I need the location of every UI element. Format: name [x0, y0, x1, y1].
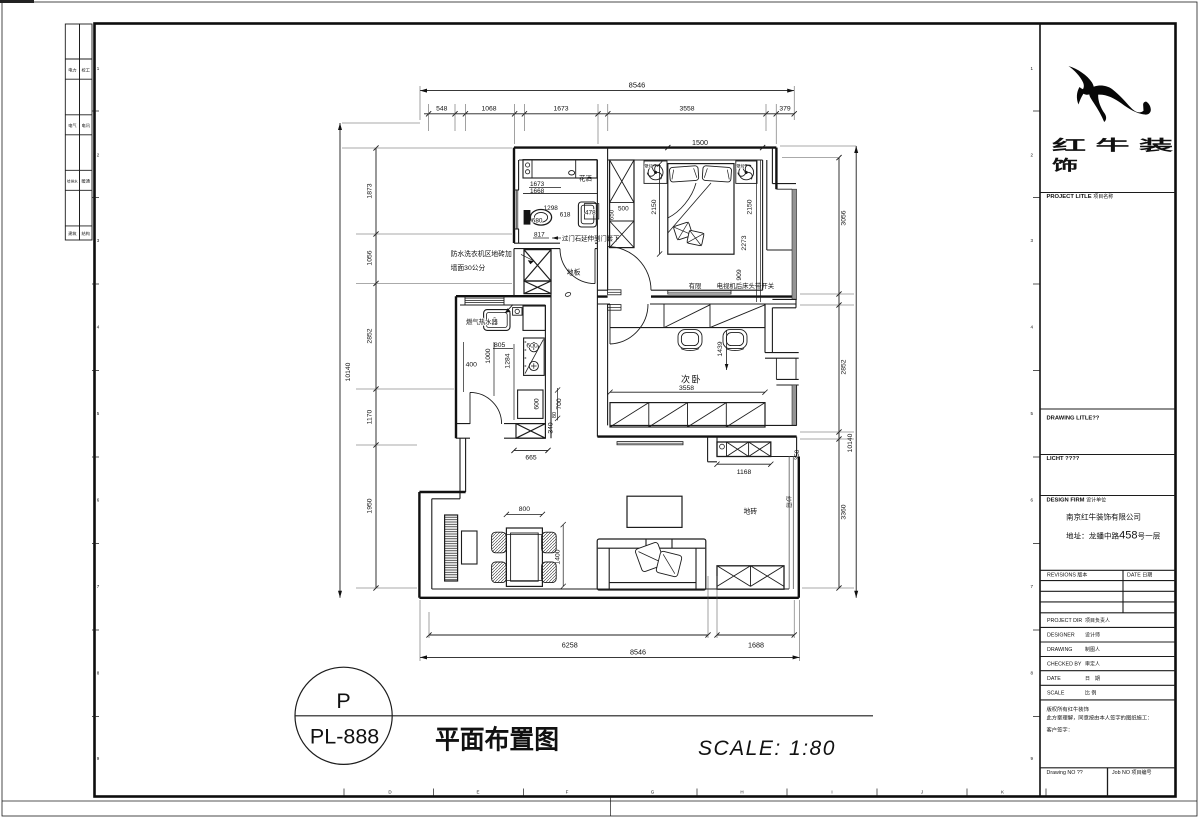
- svg-text:纱帘: 纱帘: [784, 496, 792, 508]
- svg-text:平面布置图: 平面布置图: [435, 724, 559, 754]
- svg-text:2852: 2852: [367, 328, 374, 343]
- svg-text:校工: 校工: [82, 67, 90, 74]
- svg-text:DATE 日期: DATE 日期: [1127, 573, 1152, 579]
- svg-text:3558: 3558: [679, 385, 694, 392]
- svg-text:DESIGN FIRM 设计单位: DESIGN FIRM 设计单位: [1047, 497, 1107, 504]
- svg-text:SCALE: SCALE: [1047, 691, 1065, 697]
- svg-text:电讯: 电讯: [82, 122, 91, 129]
- svg-text:G: G: [651, 790, 655, 795]
- svg-text:CHECKED BY: CHECKED BY: [1047, 662, 1082, 668]
- svg-text:给排水: 给排水: [67, 179, 78, 184]
- svg-text:1500: 1500: [692, 138, 708, 147]
- svg-text:日 期: 日 期: [1085, 676, 1100, 682]
- svg-text:1673: 1673: [553, 105, 568, 112]
- svg-text:红 牛 装: 红 牛 装: [1052, 137, 1174, 155]
- svg-text:SCALE: 1:80: SCALE: 1:80: [698, 737, 836, 760]
- svg-text:5: 5: [97, 411, 100, 416]
- svg-text:过门石延伸到门套下: 过门石延伸到门套下: [562, 233, 620, 242]
- svg-text:3056: 3056: [840, 210, 847, 225]
- svg-text:3: 3: [97, 238, 100, 243]
- svg-text:350: 350: [794, 449, 801, 460]
- svg-text:478: 478: [585, 210, 596, 217]
- svg-text:此方案理解，同意按由本人签字的图纸施工：: 此方案理解，同意按由本人签字的图纸施工：: [1047, 714, 1153, 722]
- svg-text:比 例: 比 例: [1085, 690, 1096, 697]
- svg-text:1668: 1668: [530, 188, 545, 195]
- svg-text:1056: 1056: [367, 250, 374, 265]
- svg-text:制图人: 制图人: [1085, 646, 1100, 653]
- svg-text:6: 6: [1031, 498, 1034, 503]
- svg-text:1: 1: [97, 66, 100, 71]
- svg-text:379: 379: [779, 105, 791, 112]
- svg-text:1170: 1170: [367, 409, 374, 424]
- svg-text:7: 7: [1031, 584, 1034, 589]
- svg-text:3: 3: [1031, 238, 1034, 243]
- svg-text:6258: 6258: [562, 640, 578, 649]
- svg-text:2: 2: [97, 153, 100, 158]
- svg-text:8: 8: [1031, 671, 1034, 676]
- svg-text:9: 9: [1031, 756, 1034, 761]
- svg-text:DATE: DATE: [1047, 676, 1061, 682]
- svg-text:建筑: 建筑: [68, 230, 77, 237]
- svg-text:10140: 10140: [345, 362, 352, 381]
- svg-text:817: 817: [534, 232, 545, 239]
- svg-text:饰: 饰: [1052, 157, 1078, 175]
- svg-text:618: 618: [560, 211, 571, 218]
- svg-text:1298: 1298: [544, 205, 559, 212]
- svg-text:600: 600: [526, 343, 538, 350]
- svg-text:4: 4: [97, 325, 100, 330]
- svg-text:2273: 2273: [741, 235, 748, 250]
- svg-text:D: D: [388, 790, 392, 795]
- svg-text:8546: 8546: [630, 648, 646, 657]
- svg-text:地砖: 地砖: [744, 507, 758, 516]
- svg-text:665: 665: [525, 455, 537, 462]
- svg-text:5: 5: [1031, 411, 1034, 416]
- svg-text:1000: 1000: [485, 348, 492, 363]
- svg-text:500: 500: [618, 205, 629, 212]
- svg-text:电气: 电气: [68, 122, 77, 128]
- svg-text:J: J: [921, 790, 923, 795]
- svg-text:电力: 电力: [68, 67, 76, 74]
- svg-text:结构: 结构: [82, 230, 90, 237]
- svg-text:审定人: 审定人: [1085, 661, 1100, 668]
- svg-text:10140: 10140: [847, 433, 854, 452]
- svg-text:壁灯: 壁灯: [736, 163, 745, 170]
- svg-text:909: 909: [736, 269, 743, 281]
- svg-text:设计师: 设计师: [1085, 632, 1100, 639]
- svg-text:4: 4: [1031, 325, 1034, 330]
- svg-text:K: K: [1001, 790, 1004, 795]
- svg-text:2: 2: [1031, 153, 1034, 158]
- svg-text:700: 700: [556, 398, 563, 410]
- svg-text:PROJECT LITLE 项目名称: PROJECT LITLE 项目名称: [1047, 193, 1114, 200]
- svg-text:3558: 3558: [679, 105, 694, 112]
- svg-text:I: I: [831, 790, 832, 795]
- svg-text:1284: 1284: [505, 353, 512, 368]
- svg-text:400: 400: [466, 361, 478, 368]
- svg-text:6: 6: [97, 498, 100, 503]
- svg-text:1950: 1950: [367, 498, 374, 513]
- svg-text:9: 9: [97, 756, 100, 761]
- svg-text:1673: 1673: [530, 181, 545, 188]
- svg-text:1168: 1168: [737, 469, 752, 476]
- svg-text:2852: 2852: [840, 359, 847, 374]
- svg-text:南京红牛装饰有限公司: 南京红牛装饰有限公司: [1066, 512, 1141, 522]
- svg-text:2150: 2150: [651, 199, 658, 214]
- svg-text:电视机后床头带开关: 电视机后床头带开关: [717, 281, 775, 290]
- svg-text:600: 600: [534, 398, 541, 410]
- svg-text:花洒: 花洒: [579, 174, 592, 183]
- svg-text:800: 800: [519, 506, 531, 513]
- svg-text:DRAWING LITLE??: DRAWING LITLE??: [1047, 416, 1100, 422]
- svg-text:7: 7: [97, 584, 100, 589]
- svg-text:客户签字：: 客户签字：: [1047, 726, 1074, 734]
- svg-text:1439: 1439: [717, 341, 724, 356]
- svg-text:REVISIONS 版本: REVISIONS 版本: [1047, 572, 1087, 579]
- svg-text:LICHT ????: LICHT ????: [1047, 456, 1080, 462]
- svg-text:E: E: [476, 790, 479, 795]
- svg-text:地址：龙蟠中路458号一层: 地址：龙蟠中路458号一层: [1066, 530, 1161, 542]
- svg-text:H: H: [740, 790, 743, 795]
- svg-text:650: 650: [609, 209, 616, 220]
- svg-text:1400: 1400: [555, 549, 562, 564]
- svg-text:1873: 1873: [367, 183, 374, 198]
- svg-text:805: 805: [494, 342, 506, 349]
- svg-text:340: 340: [547, 422, 554, 434]
- svg-text:1: 1: [1031, 66, 1034, 71]
- svg-text:P: P: [336, 689, 350, 713]
- svg-text:548: 548: [436, 105, 448, 112]
- svg-text:Drawing NO ??: Drawing NO ??: [1047, 770, 1083, 776]
- svg-text:680: 680: [532, 217, 543, 224]
- svg-text:1068: 1068: [481, 105, 496, 112]
- svg-text:项目负责人: 项目负责人: [1085, 617, 1110, 624]
- svg-text:防水洗衣机区地砖加: 防水洗衣机区地砖加: [451, 249, 512, 258]
- svg-text:次卧: 次卧: [681, 374, 702, 385]
- svg-text:墙面30公分: 墙面30公分: [451, 263, 486, 272]
- svg-text:壁灯: 壁灯: [644, 163, 653, 170]
- svg-text:燃气热水器: 燃气热水器: [466, 317, 499, 326]
- svg-text:8: 8: [97, 671, 100, 676]
- svg-text:PL-888: PL-888: [310, 724, 379, 748]
- svg-text:DESIGNER: DESIGNER: [1047, 633, 1075, 639]
- svg-text:PROJECT DIR: PROJECT DIR: [1047, 618, 1082, 624]
- svg-text:3360: 3360: [840, 504, 847, 519]
- svg-text:暖通: 暖通: [82, 178, 91, 185]
- svg-text:有限: 有限: [689, 281, 702, 290]
- svg-text:8546: 8546: [629, 80, 646, 89]
- svg-text:F: F: [566, 790, 569, 795]
- svg-text:Job NO 项目编号: Job NO 项目编号: [1112, 769, 1151, 776]
- svg-text:DRAWING: DRAWING: [1047, 647, 1072, 653]
- svg-text:版权所有红牛装饰: 版权所有红牛装饰: [1047, 705, 1089, 713]
- svg-text:1688: 1688: [748, 640, 764, 649]
- svg-text:80: 80: [552, 412, 558, 418]
- svg-text:2150: 2150: [747, 199, 754, 214]
